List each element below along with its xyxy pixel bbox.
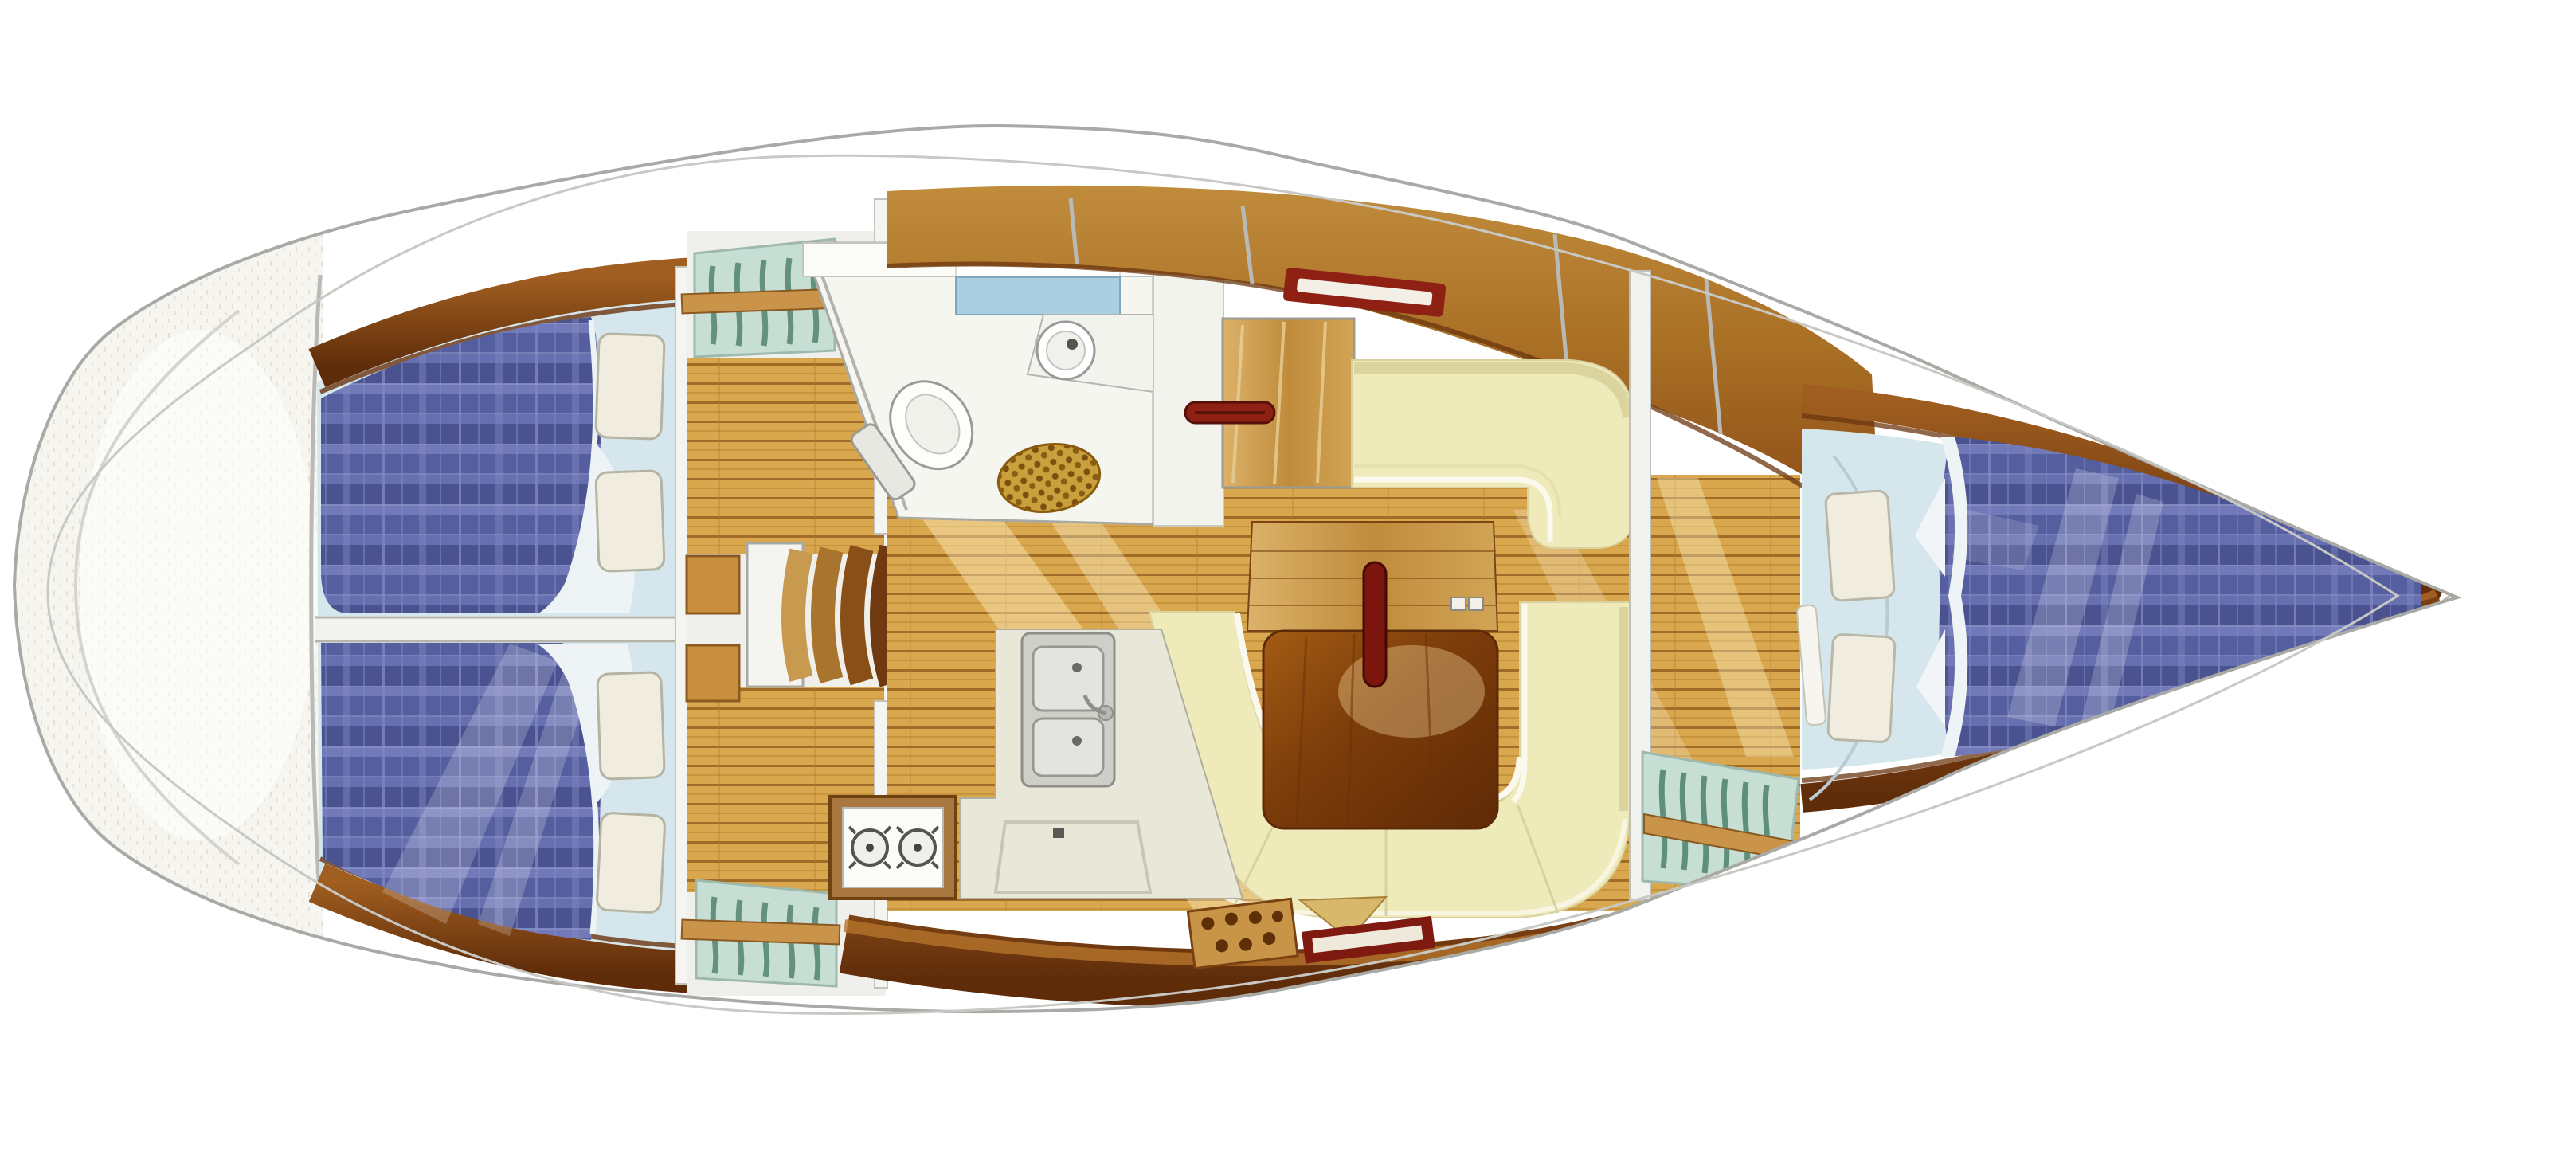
pillow [596,471,664,572]
table-gloss [1338,645,1485,738]
floorplan-canvas [0,0,2576,1171]
step-1 [793,551,801,679]
pillow [597,813,665,913]
stove-burner-right [897,827,938,868]
table-latch-left [1451,597,1466,610]
stern-highlight [80,331,319,840]
stove-burner-left [849,827,891,868]
grate-panel [1188,899,1298,968]
head-aft-bulkhead [1153,239,1223,526]
galley-sink [1022,633,1114,786]
boat-floorplan [0,0,2576,1171]
sink-basin-bottom [1033,719,1103,776]
drain-bottom [1072,736,1082,746]
head-sink [1037,322,1094,379]
hatch-upper [687,556,739,613]
pillow [597,672,665,780]
hatch-lower [687,645,739,701]
hanging-locker-aft-bottom [682,880,840,986]
floor-grate [1188,899,1298,968]
step-3 [852,548,862,682]
berth-divider [315,616,683,643]
sink-basin-top [1033,647,1103,711]
fore-pillow-lower [1828,634,1896,742]
drain-top [1072,663,1082,672]
fore-pillow-upper [1825,490,1894,601]
saloon-table [1247,522,1497,828]
galley-stove [830,797,956,899]
head-counter-blue [956,277,1120,315]
table-latch-right [1469,597,1483,610]
pillow [596,334,664,440]
step-2 [823,550,832,680]
mast [1364,562,1386,687]
galley-cabinet-knob [1053,828,1064,838]
aft-cabin [315,267,711,984]
